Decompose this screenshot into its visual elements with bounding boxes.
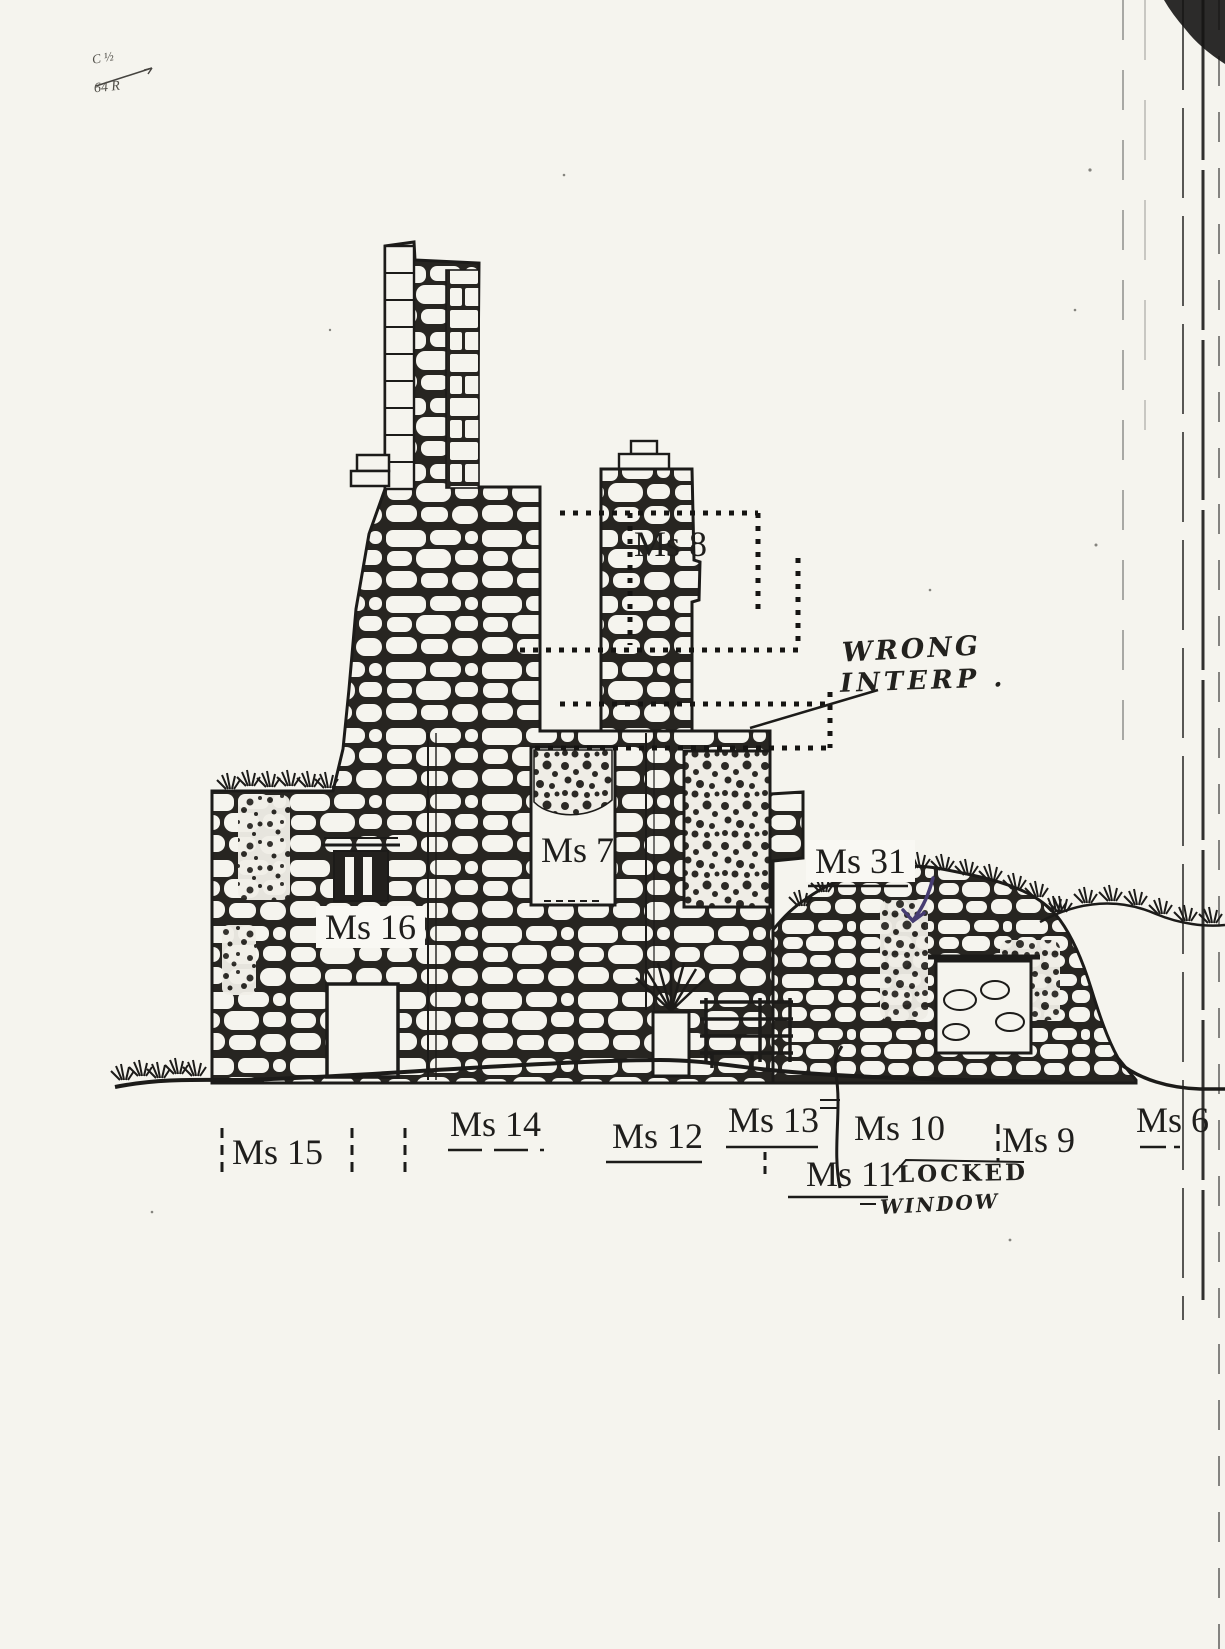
scanned-elevation-page: Ms 8 Ms 7 Ms 16 Ms 31 Ms 15 Ms 14 Ms 12 … (0, 0, 1225, 1649)
label-ms31: Ms 31 (806, 840, 915, 882)
label-ms14: Ms 14 (450, 1106, 541, 1142)
blocked-window (684, 751, 770, 907)
label-ms10: Ms 10 (854, 1110, 945, 1146)
elevation-drawing (0, 0, 1225, 1649)
main-wall (212, 242, 803, 1083)
ms7-window (531, 747, 615, 905)
label-ms7: Ms 7 (541, 832, 614, 868)
corner-note-line2: 64 R (93, 79, 121, 98)
label-ms6: Ms 6 (1136, 1102, 1209, 1138)
chimney (351, 246, 479, 489)
ms9-opening (928, 957, 1040, 1053)
label-ms8: Ms 8 (634, 526, 707, 562)
label-ms15: Ms 15 (232, 1134, 323, 1170)
label-ms16: Ms 16 (316, 906, 425, 948)
doorway (327, 984, 398, 1077)
label-ms9: Ms 9 (1002, 1122, 1075, 1158)
handwriting-interp: INTERP . (840, 663, 1007, 699)
label-ms11: Ms 11 (806, 1156, 896, 1192)
ms8-pillar (601, 441, 700, 731)
handwriting-locked: LOCKED (898, 1159, 1028, 1188)
label-ms13: Ms 13 (728, 1102, 819, 1138)
label-ms12: Ms 12 (612, 1118, 703, 1154)
